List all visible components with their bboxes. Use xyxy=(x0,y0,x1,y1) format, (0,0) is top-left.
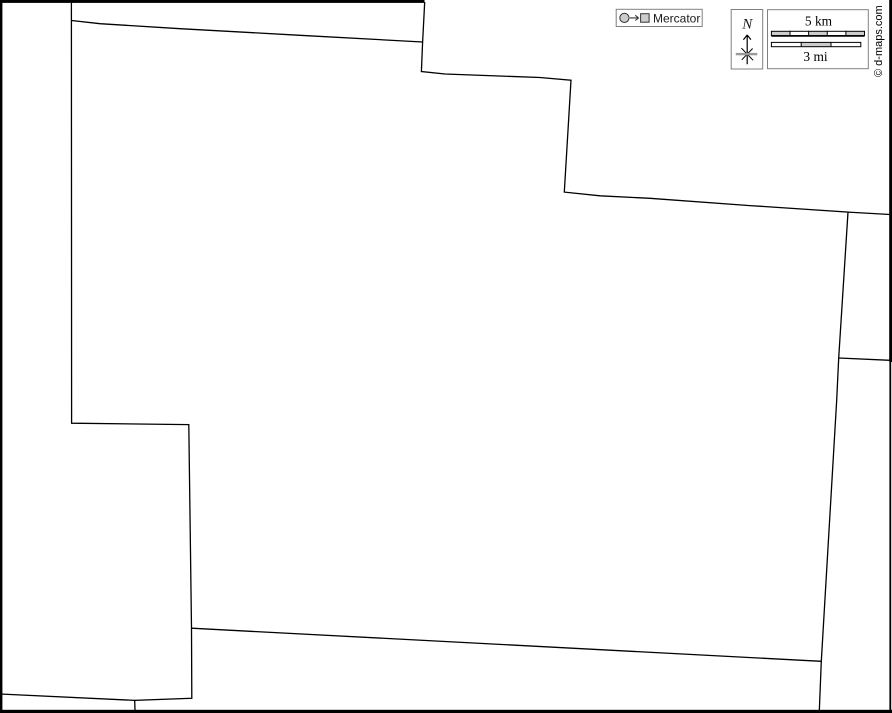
svg-text:Mercator: Mercator xyxy=(653,11,700,25)
svg-text:3 mi: 3 mi xyxy=(803,49,827,64)
svg-text:5 km: 5 km xyxy=(805,14,833,29)
svg-text:N: N xyxy=(741,16,753,32)
svg-text:© d-maps.com: © d-maps.com xyxy=(873,5,885,77)
